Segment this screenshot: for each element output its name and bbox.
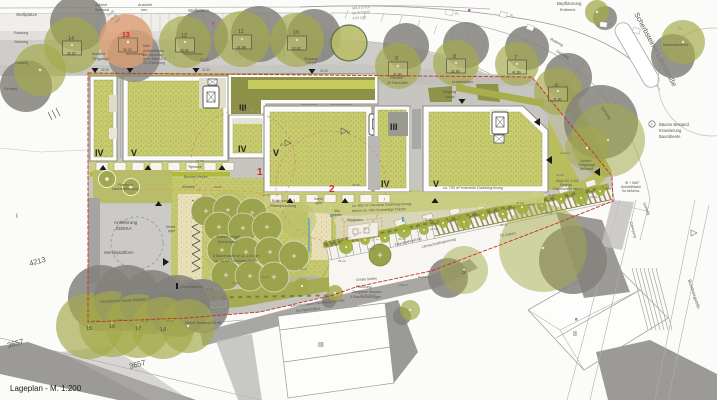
svg-text:3: 3: [462, 270, 465, 276]
svg-text:EDEKA: EDEKA: [116, 226, 133, 231]
svg-text:Baumstandort: Baumstandort: [663, 42, 689, 47]
svg-text:PL: PL: [609, 23, 613, 27]
svg-text:41.60: 41.60: [575, 187, 583, 191]
svg-text:Baumbeete: Baumbeete: [659, 134, 681, 139]
svg-text:Radweg: Radweg: [15, 61, 28, 65]
svg-text:Buchen-Hecke: Buchen-Hecke: [184, 175, 208, 179]
svg-text:Gehweg: Gehweg: [14, 40, 28, 44]
svg-text:41.40: 41.40: [141, 319, 149, 323]
svg-text:neu: neu: [141, 8, 147, 12]
svg-text:Mauer Bestand 32.40: Mauer Bestand 32.40: [185, 321, 221, 325]
svg-text:2: 2: [329, 184, 335, 195]
svg-text:IV: IV: [95, 148, 104, 158]
svg-text:Gesamt: Gesamt: [560, 151, 571, 155]
svg-text:PL: PL: [678, 27, 682, 31]
svg-text:31.21: 31.21: [262, 275, 270, 279]
svg-text:Terrasse: Terrasse: [188, 165, 202, 169]
svg-text:V: V: [433, 179, 439, 189]
svg-text:Pflanzung: Pflanzung: [356, 285, 372, 289]
svg-text:II: II: [573, 331, 577, 338]
svg-text:Böschung 1:3: Böschung 1:3: [272, 199, 295, 203]
svg-text:Insektenpflanzung: Insektenpflanzung: [112, 187, 139, 191]
svg-text:12: 12: [181, 33, 187, 39]
svg-text:Ausfahrt: Ausfahrt: [92, 52, 105, 56]
svg-text:32.30: 32.30: [101, 68, 109, 72]
svg-text:34.93: 34.93: [232, 281, 240, 285]
svg-text:36-80: 36-80: [424, 218, 433, 222]
svg-text:10: 10: [293, 30, 299, 36]
svg-text:41.40: 41.40: [166, 319, 174, 323]
svg-text:GL-Reinigung: GL-Reinigung: [143, 61, 165, 65]
svg-text:41.60: 41.60: [548, 193, 556, 197]
svg-text:41.60: 41.60: [430, 227, 438, 231]
svg-text:Sitzbank: Sitzbank: [182, 185, 195, 189]
svg-text:41.60: 41.60: [516, 201, 524, 205]
svg-text:(Dachgarten): (Dachgarten): [180, 284, 204, 289]
svg-text:Anlieferung: Anlieferung: [126, 52, 144, 56]
svg-text:Rasenböschung: Rasenböschung: [270, 204, 296, 208]
svg-text:Erweiterung: Erweiterung: [659, 128, 682, 133]
svg-text:32.30: 32.30: [67, 52, 76, 56]
svg-text:PL: PL: [455, 12, 459, 16]
svg-text:V: V: [131, 148, 137, 158]
svg-text:32.32 32.21: 32.32 32.21: [360, 293, 376, 297]
svg-text:36-80: 36-80: [352, 183, 360, 187]
svg-text:18: 18: [160, 327, 166, 333]
svg-text:ca. 90 cm Substrataufbau: ca. 90 cm Substrataufbau: [214, 259, 255, 263]
svg-text:Treppenhaus: Treppenhaus: [182, 52, 203, 56]
svg-text:32.30: 32.30: [202, 68, 210, 72]
svg-text:'Grüner Hügel': 'Grüner Hügel': [216, 235, 241, 239]
svg-text:22 Fahrräder: 22 Fahrräder: [387, 81, 409, 85]
svg-text:Eingang: Eingang: [443, 90, 456, 94]
svg-text:32.32: 32.32: [500, 223, 508, 227]
svg-text:Bestand: Bestand: [580, 167, 593, 171]
svg-text:31.21: 31.21: [300, 267, 308, 271]
svg-text:32.22: 32.22: [338, 259, 346, 263]
svg-text:Radweg: Radweg: [14, 31, 28, 35]
svg-text:32.10: 32.10: [320, 69, 328, 73]
svg-text:I: I: [16, 213, 18, 220]
svg-text:A: A: [280, 142, 283, 147]
svg-text:41.60: 41.60: [556, 173, 564, 177]
svg-text:11: 11: [238, 29, 244, 35]
svg-text:1: 1: [257, 167, 263, 178]
svg-text:III: III: [318, 342, 324, 349]
svg-text:spiel: spiel: [168, 229, 175, 233]
svg-text:8 Baumhaseln je ca. 1:40 qm: 8 Baumhaseln je ca. 1:40 qm: [213, 254, 260, 258]
svg-text:IV: IV: [238, 144, 247, 154]
svg-text:Haupt: Haupt: [445, 95, 455, 99]
svg-text:32.32: 32.32: [205, 287, 213, 291]
svg-text:32.07: 32.07: [368, 247, 376, 251]
svg-text:16: 16: [109, 324, 115, 330]
svg-text:31.21: 31.21: [590, 195, 598, 199]
svg-text:Ausfahrt: Ausfahrt: [138, 3, 153, 7]
svg-text:1 Baum: 1 Baum: [398, 283, 409, 287]
svg-text:31.98: 31.98: [237, 46, 246, 50]
svg-text:Erdbeerk: Erdbeerk: [560, 8, 576, 12]
svg-text:Tiefgarage: Tiefgarage: [92, 57, 109, 61]
svg-text:32.40: 32.40: [92, 319, 100, 323]
svg-text:ca. 740 m² extensive Dachbegrü: ca. 740 m² extensive Dachbegrünung: [443, 186, 503, 190]
svg-text:Bäume Bestand: Bäume Bestand: [659, 122, 689, 127]
svg-text:14: 14: [68, 36, 74, 42]
svg-text:Anlieferung: Anlieferung: [114, 220, 138, 225]
svg-text:Gehweg: Gehweg: [4, 87, 17, 91]
svg-text:III: III: [239, 103, 247, 113]
svg-text:34.40: 34.40: [262, 193, 270, 197]
svg-text:Zufahrt: Zufahrt: [95, 3, 108, 7]
svg-text:für Abfuhrw.: für Abfuhrw.: [622, 189, 640, 193]
svg-text:IV: IV: [381, 179, 390, 189]
svg-text:Stellplätze: Stellplätze: [16, 12, 38, 17]
svg-text:Kinderspiel: Kinderspiel: [218, 240, 237, 244]
svg-text:Wendeplattform: Wendeplattform: [104, 250, 134, 255]
svg-text:8: 8: [453, 54, 456, 60]
svg-text:6: 6: [555, 83, 558, 89]
svg-text:41.60: 41.60: [512, 71, 521, 75]
svg-text:15: 15: [86, 326, 92, 332]
svg-text:9: 9: [395, 56, 398, 62]
svg-text:7: 7: [514, 55, 517, 61]
svg-text:eLadestation: eLadestation: [452, 80, 473, 84]
svg-text:Lageplan - M. 1.200: Lageplan - M. 1.200: [10, 384, 82, 393]
svg-text:34.00: 34.00: [214, 185, 222, 189]
svg-text:31.60: 31.60: [553, 98, 562, 102]
svg-text:Bestand: Bestand: [418, 275, 429, 279]
svg-text:PL: PL: [510, 14, 514, 18]
svg-text:17: 17: [135, 326, 141, 332]
svg-text:Stellplätze: Stellplätze: [188, 8, 210, 13]
svg-text:V: V: [273, 148, 279, 158]
svg-text:Treppe: Treppe: [305, 61, 316, 65]
svg-text:III: III: [390, 122, 398, 132]
svg-text:stufen: stufen: [333, 213, 342, 217]
svg-text:31.21: 31.21: [545, 211, 553, 215]
svg-text:31.90: 31.90: [451, 70, 460, 74]
svg-text:Wippplane: Wippplane: [347, 218, 363, 222]
svg-text:34.93: 34.93: [196, 159, 204, 163]
svg-text:13: 13: [122, 32, 130, 39]
svg-text:32.30: 32.30: [200, 58, 209, 62]
svg-text:34.96: 34.96: [116, 318, 124, 322]
svg-text:Gesamt: Gesamt: [390, 76, 403, 80]
svg-text:41.60: 41.60: [398, 237, 406, 241]
svg-text:41.60: 41.60: [472, 213, 480, 217]
svg-text:Müll: Müll: [143, 44, 150, 48]
svg-text:Bepflanzung: Bepflanzung: [557, 1, 582, 6]
svg-text:Bestand: Bestand: [95, 8, 109, 12]
svg-text:spiel: spiel: [315, 201, 323, 205]
svg-text:32.92: 32.92: [292, 47, 301, 51]
